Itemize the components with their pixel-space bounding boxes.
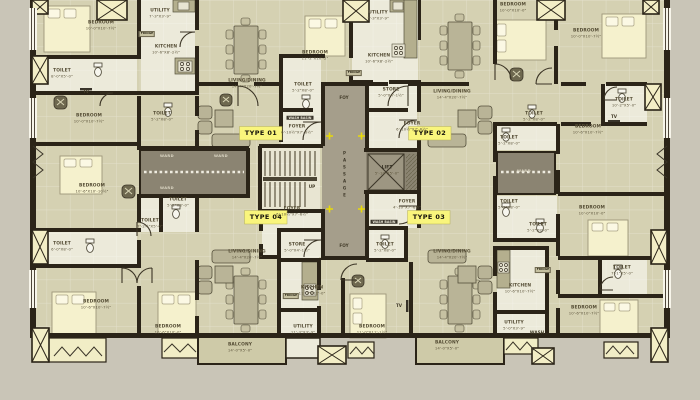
room-label-utility: UTILITY5'-0"X3'-9" [503, 321, 525, 332]
room-label-foyer: FOYER6'-10½"X7'-6½" [396, 122, 428, 133]
appliance-label-fridge: FRIDGE [139, 31, 155, 37]
small-label-tv: TV [396, 304, 402, 308]
small-label-wash: WASH [530, 331, 544, 335]
floor-plan-canvas: TYPE 01 TYPE 02 TYPE 04 TYPE 03 BEDROOM1… [0, 0, 700, 400]
appliance-label-fridge: FRIDGE [283, 293, 299, 299]
room-label-foyer: FOYER6'-10½"X7'-6½" [281, 125, 313, 136]
room-label-living-dining: LIVING/DINING14'-4"X20'-7½" [433, 90, 471, 101]
small-label-up: UP [309, 185, 315, 189]
room-label-store: STORE5'-0"X4'-1½" [284, 243, 309, 254]
room-label-toilet: TOILET7'-2½"X5'-0" [137, 219, 162, 230]
room-label-toilet: TOILET5'-2"X8'-0" [374, 243, 396, 254]
wardrobe-label-ward: WARD [160, 155, 174, 159]
room-label-bedroom: BEDROOM10'-6"X10'-7½" [569, 306, 600, 317]
room-label-bedroom: BEDROOM10'-6"X10'-0" [155, 325, 182, 336]
room-label-toilet: TOILET5'-2"X8'-0" [151, 112, 173, 123]
appliance-label-fridge: FRIDGE [535, 267, 551, 273]
room-label-bedroom: BEDROOM11'-0"X11'-1½" [357, 325, 388, 336]
room-label-toilet: TOILET10'-2"X5'-0" [612, 98, 636, 109]
room-label-utility: UTILITY7'-3"X3'-9" [367, 11, 389, 22]
room-label-bedroom: BEDROOM10'-0"X10'-0" [579, 206, 606, 217]
fixture-label-wash-basin: WASH BASIN [371, 220, 398, 224]
room-label-kitchen: KITCHEN10'-6"X8'-2½" [365, 54, 393, 65]
room-label-lift: LIFT5'-10"X5'-0" [375, 166, 399, 177]
unit-type-03-label: TYPE 03 [408, 211, 450, 224]
passage-label-passage: PASSAGE [342, 151, 346, 200]
room-label-toilet: TOILET6'-0"X8'-0" [51, 242, 73, 253]
room-label-balcony: BALCONY14'-0"X5'-0" [435, 341, 459, 352]
room-label-bedroom: BEDROOM10'-0"X10'-7½" [86, 21, 117, 32]
room-label-kitchen: KITCHEN10'-6"X10'-7½" [505, 284, 536, 295]
room-label-foyer: FOYER4'-10"X7'-6½" [393, 200, 421, 211]
room-label-kitchen: KITCHEN10'-6"X8'-2½" [152, 45, 180, 56]
room-label-foyer: FOYER6'-10½"X7'-6½" [276, 207, 308, 218]
wardrobe-label-ward: WARD [517, 170, 531, 174]
room-label-toilet: TOILET5'-2"X8'-0" [498, 200, 520, 211]
small-label-foy: FOY [339, 96, 348, 100]
room-label-living-dining: LIVING/DINING14'-4"X20'-7½" [433, 250, 471, 261]
room-label-utility: UTILITY11'-3"X3'-9" [291, 325, 315, 336]
room-label-toilet: TOILET8'-0"X5'-0" [51, 69, 73, 80]
small-label-tv: TV [611, 115, 617, 119]
small-label-tv: TV [83, 90, 89, 94]
room-label-store: STORE5'-0"X4'-1½" [378, 88, 403, 99]
room-label-toilet: TOILET5'-2"X8'-0" [292, 83, 314, 94]
room-label-bedroom: BEDROOM10'-0"X10'-7½" [571, 29, 602, 40]
unit-type-01-label: TYPE 01 [240, 127, 282, 140]
room-label-bedroom: BEDROOM10'-6"X10'-7½" [573, 125, 604, 136]
room-label-balcony: BALCONY14'-0"X5'-0" [228, 343, 252, 354]
fixture-label-wash-basin: WASH BASIN [287, 116, 314, 120]
small-label-foy: FOY [339, 244, 348, 248]
room-label-toilet: TOILET5'-2"X8'-0" [498, 136, 520, 147]
appliance-label-fridge: FRIDGE [346, 70, 362, 76]
room-label-toilet: TOILET5'-2"X8'-0" [527, 223, 549, 234]
room-label-toilet: TOILET7'-1"X5'-0" [611, 266, 633, 277]
room-label-utility: UTILITY7'-3"X3'-9" [149, 9, 171, 20]
room-label-bedroom: BEDROOM10'-6"X10'-7½" [81, 300, 112, 311]
room-labels-layer: TYPE 01 TYPE 02 TYPE 04 TYPE 03 BEDROOM1… [0, 0, 700, 400]
wardrobe-label-ward: WARD [160, 187, 174, 191]
room-label-bedroom: BEDROOM10'-0"X10'-0" [500, 3, 527, 14]
room-label-bedroom: BEDROOM10'-0"X10'-7½" [74, 114, 105, 125]
room-label-kitchen: KITCHEN11'-3"X10'-0" [299, 286, 326, 297]
room-label-living-dining: LIVING/DINING14'-4"X20'-7½" [228, 79, 266, 90]
room-label-bedroom: BEDROOM10'-6"X10'-10½" [75, 184, 108, 195]
room-label-bedroom: BEDROOM11'-2"X10'-2" [302, 51, 329, 62]
room-label-living-dining: LIVING/DINING14'-4"X20'-7½" [228, 250, 266, 261]
room-label-toilet: TOILET5'-2"X8'-0" [167, 198, 189, 209]
wardrobe-label-ward: WARD [214, 155, 228, 159]
room-label-toilet: TOILET5'-2"X8'-0" [523, 112, 545, 123]
